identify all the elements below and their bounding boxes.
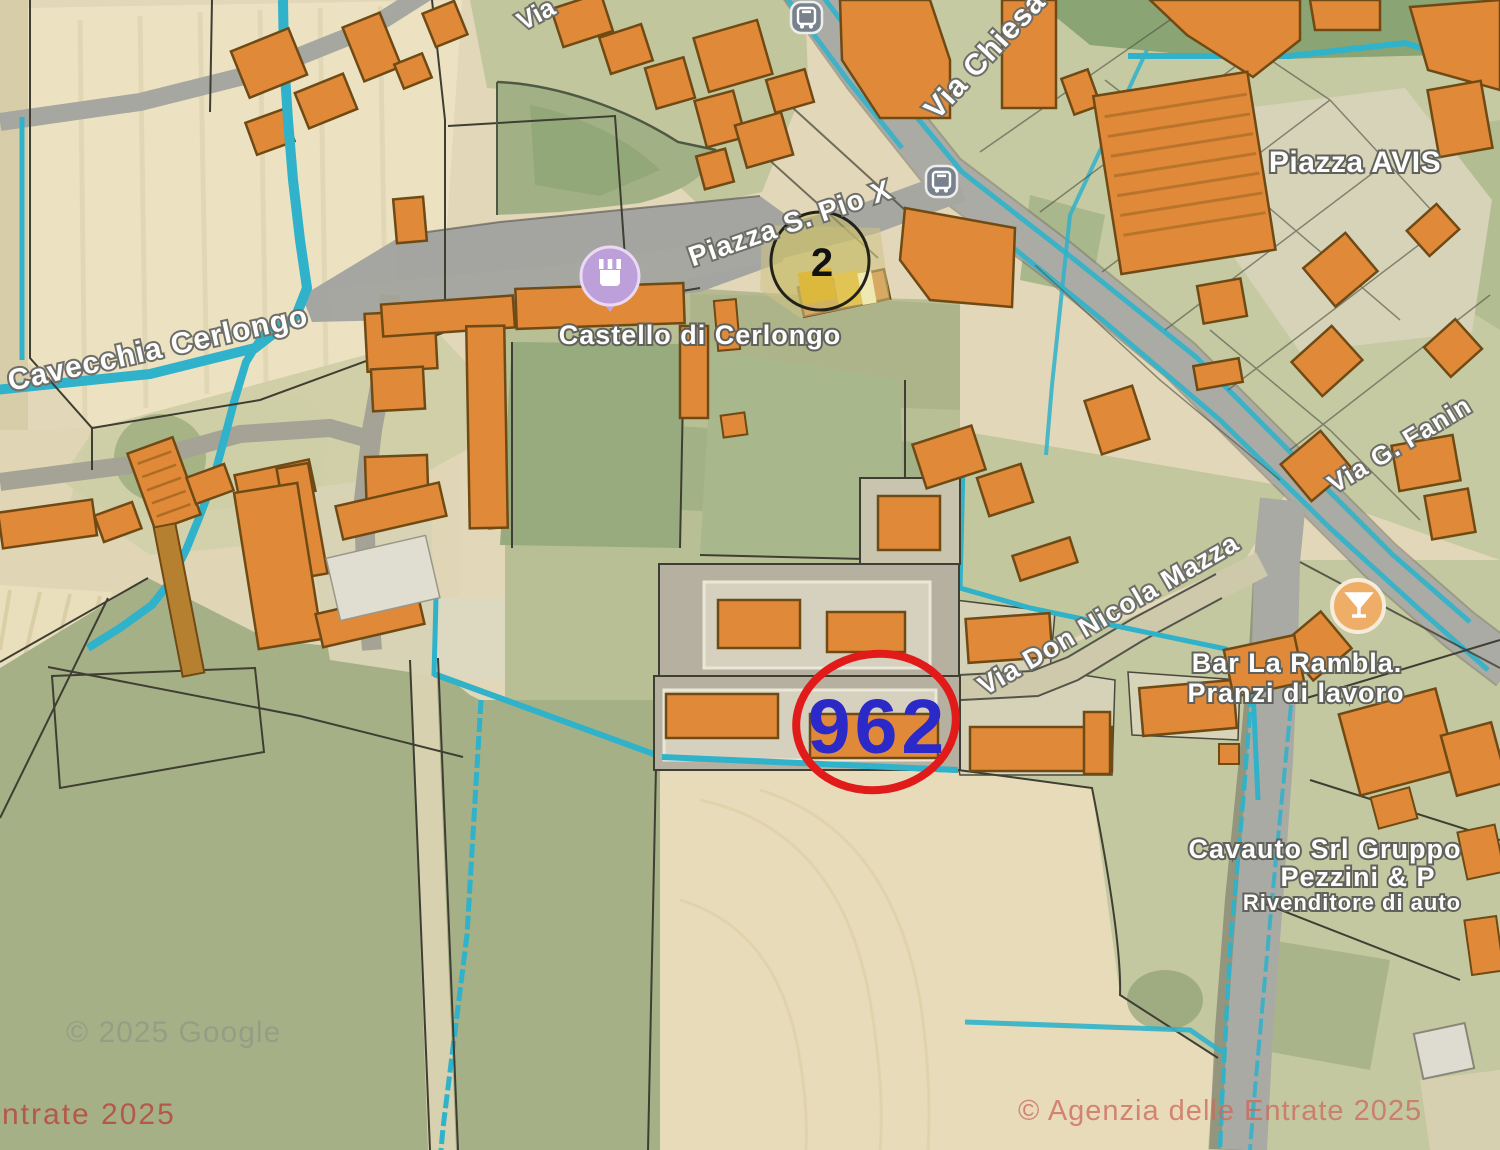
svg-text:Piazza AVIS: Piazza AVIS (1269, 146, 1441, 179)
svg-text:Cavauto Srl Gruppo: Cavauto Srl Gruppo (1188, 834, 1461, 864)
svg-text:Pezzini & P: Pezzini & P (1280, 862, 1435, 892)
svg-text:© Agenzia delle Entrate 2025: © Agenzia delle Entrate 2025 (1018, 1095, 1422, 1127)
svg-text:962: 962 (808, 684, 948, 770)
svg-text:Castello di Cerlongo: Castello di Cerlongo (559, 320, 842, 350)
svg-text:© 2025 Google: © 2025 Google (66, 1016, 281, 1049)
svg-text:2: 2 (811, 241, 833, 285)
svg-text:ntrate 2025: ntrate 2025 (2, 1098, 176, 1131)
svg-text:Pranzi di lavoro: Pranzi di lavoro (1187, 678, 1404, 708)
svg-text:Bar La Rambla.: Bar La Rambla. (1192, 648, 1403, 678)
svg-text:Rivenditore di auto: Rivenditore di auto (1243, 890, 1461, 915)
